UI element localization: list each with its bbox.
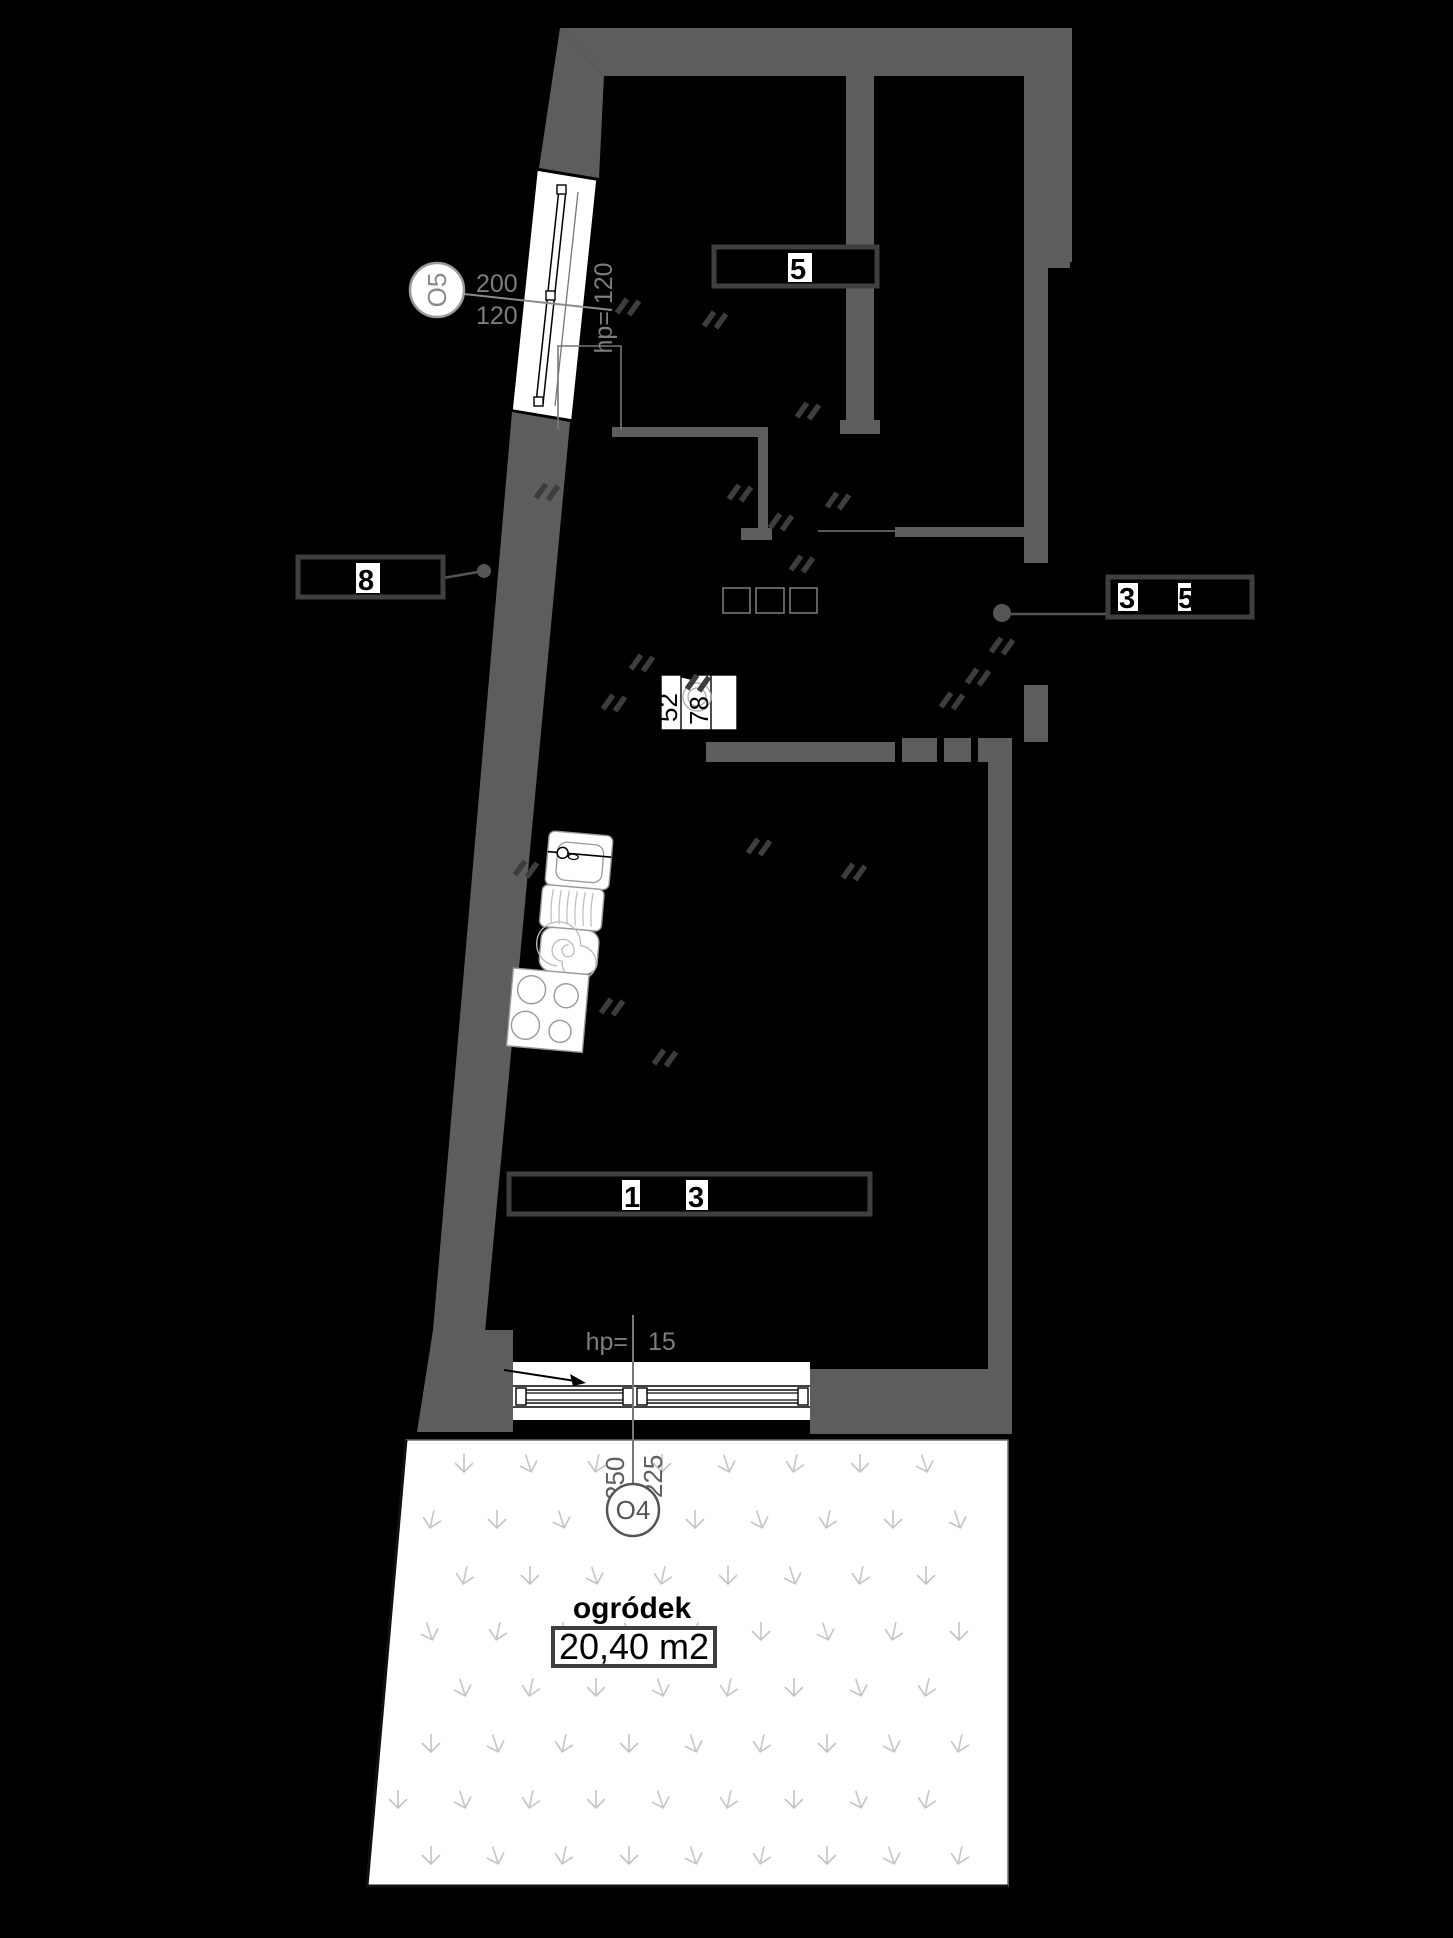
window-o4-sash-right-inner	[644, 1393, 802, 1400]
label-digit-living-1: 1	[624, 1182, 640, 1214]
wall-right-upper	[1024, 76, 1072, 262]
window-o5-cap-bottom	[534, 397, 543, 406]
kitchen-stove	[507, 968, 590, 1052]
label-cover-entry	[1191, 581, 1211, 613]
wall-shaft-1	[902, 738, 937, 762]
wall-right-ledge	[1048, 262, 1070, 268]
wall-top	[560, 28, 1072, 76]
window-o5-cap-top	[557, 185, 566, 194]
bath-dim-78: 78	[684, 696, 714, 725]
wall-int-vertical-1	[758, 437, 768, 528]
window-o4-cap-2	[623, 1388, 633, 1405]
wall-int-foot-2	[840, 420, 880, 434]
room-label-top: 5	[714, 247, 877, 286]
floor-plan-page: 52 78 O5 200 120 hp= 120	[0, 0, 1453, 1938]
label-cover-living	[640, 1180, 686, 1210]
window-o4-cap-3	[637, 1388, 647, 1405]
wall-int-foot-1	[741, 528, 772, 540]
label-digit-living-2: 3	[688, 1182, 704, 1214]
window-o4-sash-left-inner	[524, 1393, 623, 1400]
garden-label: ogródek 20,40 m2	[553, 1592, 715, 1667]
window-o4	[504, 1362, 810, 1420]
wall-bottom-right-block	[810, 1369, 1012, 1434]
wall-bath-bottom	[706, 742, 895, 762]
window-o5-cap-mid	[546, 291, 555, 300]
garden-area-value: 20,40 m2	[559, 1626, 709, 1667]
wall-int-horizontal-2	[895, 527, 1024, 537]
wall-shaft-2	[944, 738, 971, 762]
wall-bottom-left-block	[417, 1330, 513, 1432]
label-cover-hall	[308, 563, 356, 593]
o5-dim-height: 120	[476, 302, 518, 330]
window-o4-cap-4	[798, 1388, 808, 1405]
o4-sill-prefix: hp=	[586, 1328, 628, 1356]
label-digit-hall: 8	[358, 565, 374, 597]
entry-door-pivot	[993, 604, 1011, 622]
label-cover-top-room	[728, 253, 788, 282]
wall-living-right	[988, 762, 1012, 1369]
garden-name: ogródek	[573, 1592, 692, 1625]
window-o4-cap-1	[516, 1388, 526, 1405]
wall-right-lower	[1024, 685, 1048, 742]
o4-sill-value: 15	[648, 1328, 676, 1356]
hall-leader-dot	[477, 564, 491, 578]
o4-symbol-text: O4	[616, 1495, 651, 1525]
o5-sill-height: hp= 120	[590, 262, 618, 353]
o5-symbol-text: O5	[422, 273, 452, 308]
wall-shaft-3	[978, 738, 1012, 762]
label-digit-entry-1: 3	[1119, 583, 1135, 615]
bath-dim-52: 52	[653, 693, 683, 722]
floor-plan-drawing: 52 78 O5 200 120 hp= 120	[0, 0, 1453, 1938]
o5-dim-width: 200	[476, 270, 518, 298]
wall-int-horizontal-1	[612, 427, 768, 437]
label-digit-top-room: 5	[790, 254, 806, 286]
kitchen-faucet	[557, 847, 569, 859]
kitchen-faucet-spout	[568, 854, 578, 860]
room-label-living: 1 3	[509, 1174, 870, 1214]
wall-right-mid	[1024, 262, 1048, 563]
